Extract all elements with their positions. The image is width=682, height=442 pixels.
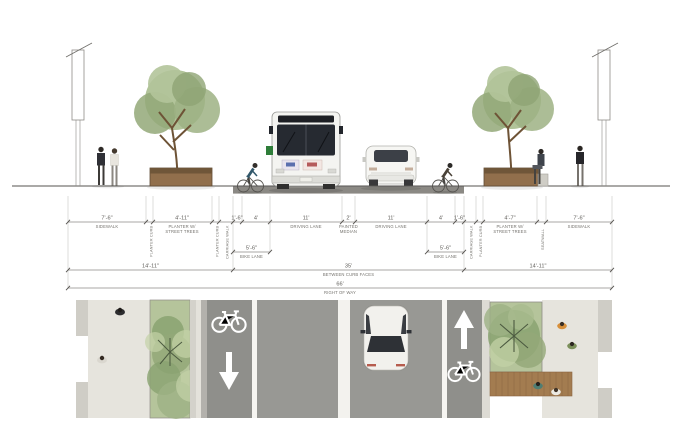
diagram-canvas: 7'-6" SIDEWALK 4'-11" PLANTER W/ STREET …: [0, 0, 682, 442]
dim-value: 66': [336, 282, 343, 288]
cyclist-torso: [443, 169, 449, 178]
plan-car-mirror: [361, 330, 366, 333]
lane-stripe: [442, 300, 447, 418]
bus-mirror: [339, 126, 343, 134]
bus-license-plate: [300, 177, 312, 182]
dim-value: 4'-7": [504, 216, 515, 222]
dim-value: 7'-6": [573, 216, 584, 222]
plan-carriage-walk: [190, 300, 196, 418]
dim-label: RIGHT OF WAY: [324, 290, 356, 295]
section-elevation-view: [12, 43, 670, 194]
bus-mirror: [269, 126, 273, 134]
car-rear-window: [374, 150, 408, 162]
plan-car-light: [367, 364, 376, 366]
dim-label: STREET TREES: [493, 229, 526, 234]
bus-headlight: [276, 169, 284, 173]
dim-value: 1'-6": [231, 216, 242, 222]
dim-value: 14'-11": [142, 264, 159, 270]
plan-car: [361, 305, 412, 371]
plan-driving-lane-left: [257, 300, 338, 418]
dim-label-vertical: PLANTER CURB: [149, 225, 154, 257]
plan-view: [76, 300, 612, 419]
pedestrian-right: [571, 146, 589, 188]
building-cut-left: [66, 43, 92, 186]
dim-label-vertical: PLANTER CURB: [478, 225, 483, 257]
dim-value: 2': [346, 216, 350, 222]
bus-wheel: [277, 184, 289, 189]
dim-label: BIKE LANE: [240, 254, 263, 259]
street-section-diagram: 7'-6" SIDEWALK 4'-11" PLANTER W/ STREET …: [0, 0, 682, 442]
person-head: [577, 146, 582, 151]
dim-value: 4': [254, 216, 258, 222]
bus-wheel: [323, 184, 335, 189]
dim-label: DRIVING LANE: [375, 224, 406, 229]
dim-value: 4': [439, 216, 443, 222]
dim-value: 1'-6": [454, 216, 465, 222]
lane-stripe: [252, 300, 257, 418]
dim-value: 35': [345, 264, 352, 270]
person-head: [538, 149, 543, 154]
building-edge-left: [76, 300, 88, 336]
car: [361, 146, 421, 191]
dim-value: 5'-6": [246, 246, 257, 252]
dim-label: STREET TREES: [165, 229, 198, 234]
dimension-annotations: 7'-6" SIDEWALK 4'-11" PLANTER W/ STREET …: [66, 196, 614, 295]
plan-painted-median: [338, 300, 350, 418]
dim-label: BETWEEN CURB FACES: [323, 272, 374, 277]
car-taillight: [369, 168, 377, 171]
dim-label-vertical: PLANTER CURB: [215, 225, 220, 257]
bus-route-sign: [266, 146, 273, 155]
dim-value: 11': [303, 216, 310, 222]
dim-value: 14'-11": [530, 264, 547, 270]
road-section-band: [233, 186, 464, 193]
car-taillight: [405, 168, 413, 171]
dim-label-vertical: SEATWALL: [540, 228, 545, 250]
pedestrian: [112, 148, 117, 153]
cyclist-head: [253, 163, 258, 168]
bus: [266, 112, 343, 193]
dim-label: SIDEWALK: [568, 224, 591, 229]
dim-label: MEDIAN: [340, 229, 357, 234]
dim-value: 4'-11": [175, 216, 189, 222]
plan-car-windshield: [367, 336, 405, 352]
dim-value: 5'-6": [440, 246, 451, 252]
plan-sidewalk-right: [542, 300, 598, 418]
car-wheel: [369, 180, 378, 186]
car-mirror: [416, 157, 420, 162]
building-cut-right: [592, 43, 618, 186]
plan-planter-curb: [201, 300, 207, 418]
bus-headlight: [328, 169, 336, 173]
dim-label-vertical: CARRIAGE WALK: [469, 225, 474, 259]
car-wheel: [404, 180, 413, 186]
dim-label: SIDEWALK: [96, 224, 119, 229]
dim-label: BIKE LANE: [434, 254, 457, 259]
cyclist-head: [448, 163, 453, 168]
pedestrians-left: [92, 147, 124, 189]
street-tree-right: [472, 66, 554, 190]
street-tree-left: [134, 65, 220, 190]
car-mirror: [363, 157, 367, 162]
plan-car-light: [396, 364, 405, 366]
plan-car-mirror: [407, 330, 412, 333]
building-edge-right: [598, 300, 612, 352]
cyclist-torso: [248, 169, 254, 178]
building-edge-right: [598, 388, 612, 418]
pedestrian: [98, 147, 103, 152]
bus-destination-sign: [278, 116, 334, 123]
dim-value: 7'-6": [101, 216, 112, 222]
dim-label: DRIVING LANE: [290, 224, 321, 229]
dim-value: 11': [388, 216, 395, 222]
dim-label-vertical: CARRIAGE WALK: [225, 225, 230, 259]
building-edge-left: [76, 382, 88, 418]
